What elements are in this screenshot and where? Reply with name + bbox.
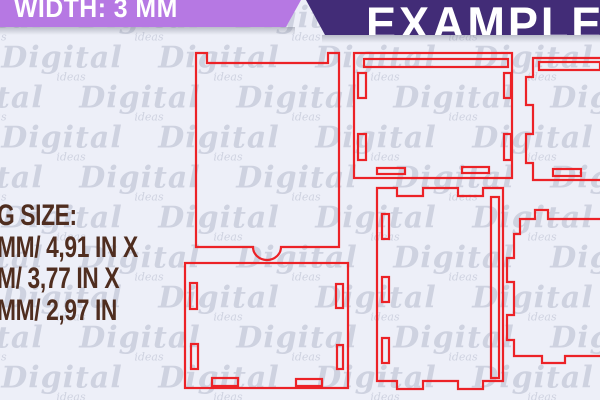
width-label: WIDTH: 3 MM <box>14 0 178 24</box>
banner-shadow-right <box>322 35 600 43</box>
bag-size-line-4: MM/ 2,97 IN <box>0 295 138 327</box>
bag-size-line-1: G SIZE: <box>0 200 138 232</box>
bag-size-info: G SIZE: MM/ 4,91 IN X M/ 3,77 IN X MM/ 2… <box>0 200 182 326</box>
piece-back-panel <box>354 53 512 178</box>
laser-template-preview: DigitalideasDigitalideasDigitalideasDigi… <box>0 0 600 400</box>
width-banner: WIDTH: 3 MM <box>0 0 330 27</box>
piece-right-panel-bottom <box>507 210 600 363</box>
banner-shadow-left <box>0 27 295 35</box>
bag-size-line-3: M/ 3,77 IN X <box>0 263 138 295</box>
piece-base-panel <box>185 263 348 388</box>
bag-size-line-2: MM/ 4,91 IN X <box>0 232 138 264</box>
piece-side-panel <box>377 188 503 389</box>
piece-front-lid-panel <box>196 53 339 260</box>
piece-right-panel-top <box>526 58 600 180</box>
